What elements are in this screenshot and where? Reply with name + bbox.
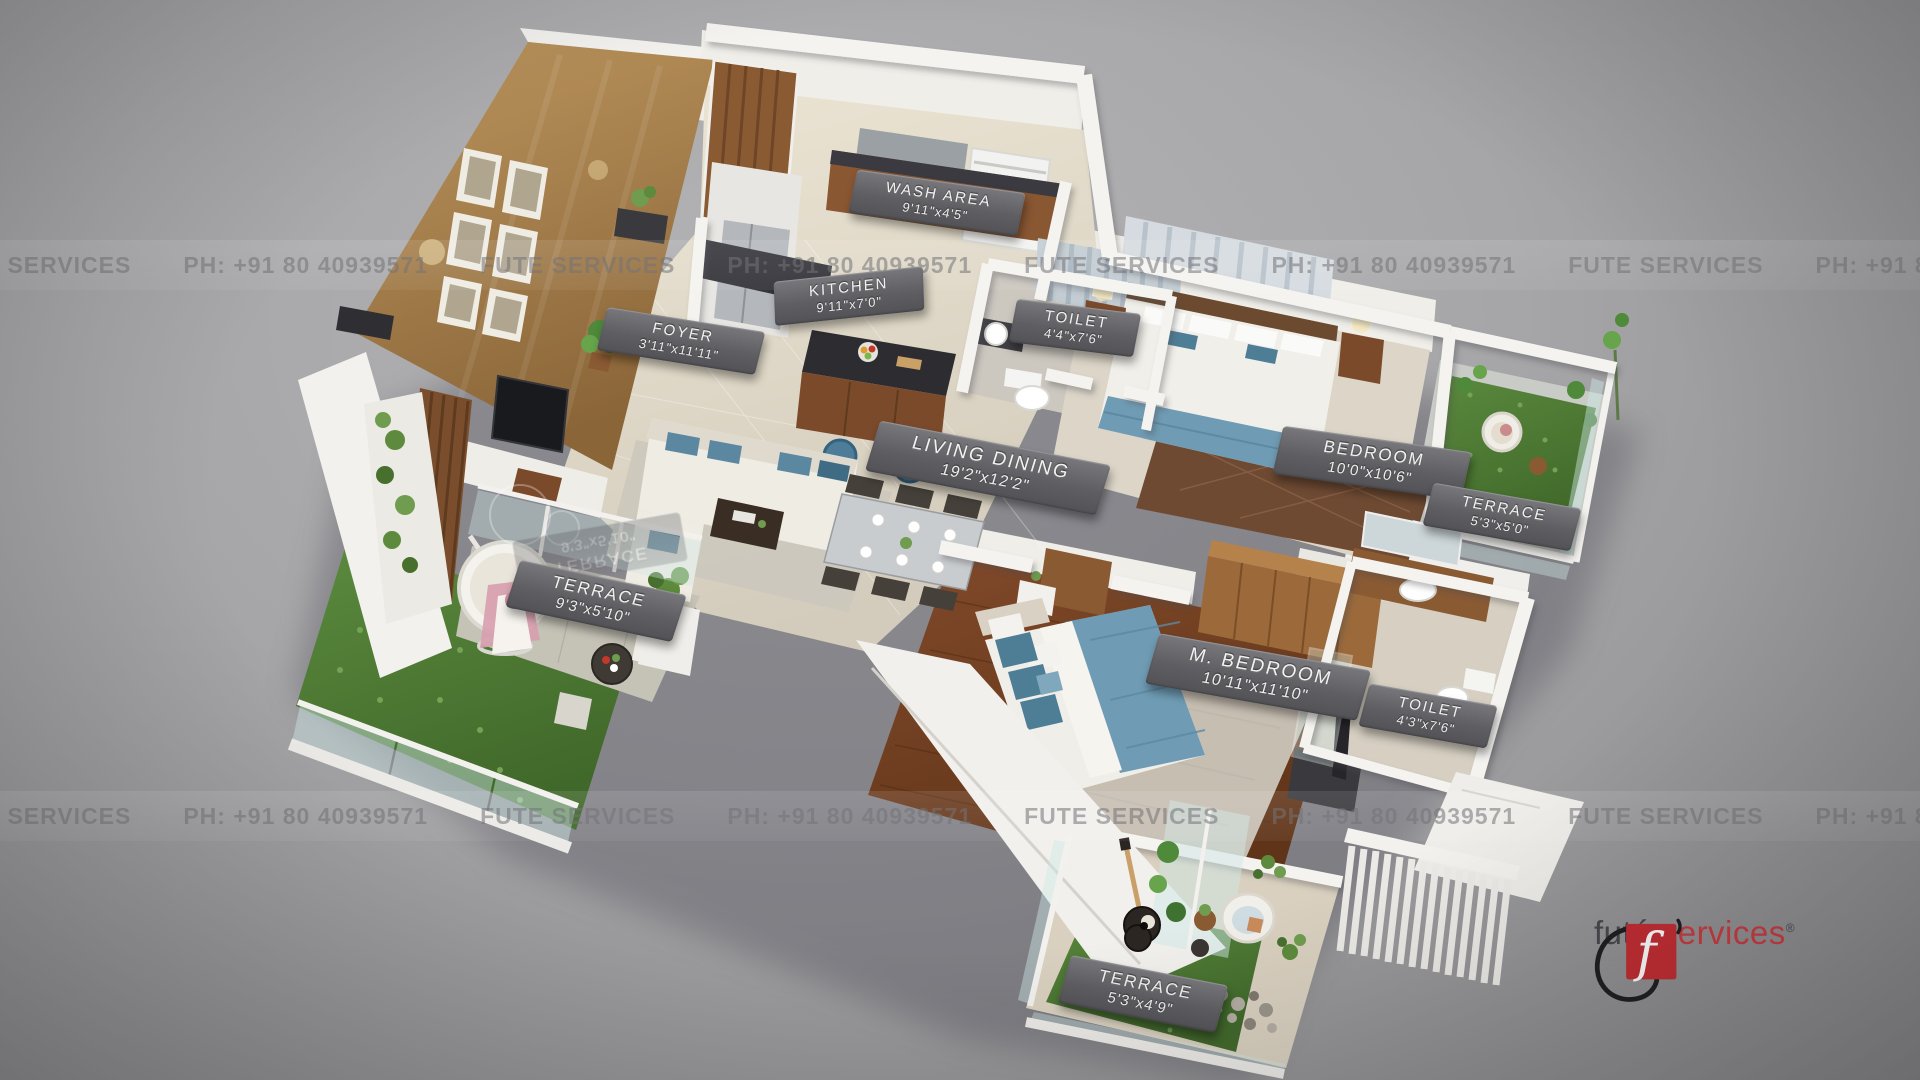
fute-services-logo: f futé services® Futuristic Unique Trend…	[1588, 916, 1795, 970]
side-table	[1529, 457, 1547, 475]
watermark-text: FUTE SERVICES	[480, 252, 675, 279]
watermark-text: PH: +91 80 40939571	[1816, 252, 1920, 279]
toilet-bowl	[1015, 386, 1049, 410]
watermark-text: FUTE SERVICES	[480, 803, 675, 830]
watermark-text: FUTE SERVICES	[1568, 803, 1763, 830]
watermark-text: PH: +91 80 40939571	[183, 252, 428, 279]
nightstand	[1338, 332, 1384, 384]
fute-logo-mark: f	[1588, 916, 1692, 1008]
tv-screen	[492, 376, 568, 452]
watermark-text: PH: +91 80 40939571	[1271, 803, 1516, 830]
watermark-text: FUTE SERVICES	[1024, 252, 1219, 279]
wash-basin	[985, 323, 1007, 345]
watermark-band: FUTE SERVICESPH: +91 80 40939571FUTE SER…	[0, 791, 1920, 841]
floor-plan-render: FUTE SERVICESPH: +91 80 40939571FUTE SER…	[0, 0, 1920, 1080]
wall-light	[588, 160, 608, 180]
watermark-text: PH: +91 80 40939571	[1816, 803, 1920, 830]
watermark-text: FUTE SERVICES	[0, 252, 131, 279]
watermark-text: FUTE SERVICES	[1024, 803, 1219, 830]
watermark-text: PH: +91 80 40939571	[1271, 252, 1516, 279]
stool	[1191, 939, 1209, 957]
logo-flick	[1678, 920, 1680, 932]
watermark-band: FUTE SERVICESPH: +91 80 40939571FUTE SER…	[0, 240, 1920, 290]
watermark-text: FUTE SERVICES	[1568, 252, 1763, 279]
watermark-text: FUTE SERVICES	[0, 803, 131, 830]
patio-table	[592, 644, 632, 684]
watermark-text: PH: +91 80 40939571	[727, 803, 972, 830]
watermark-text: PH: +91 80 40939571	[183, 803, 428, 830]
logo-registered-mark: ®	[1786, 921, 1795, 935]
outdoor-armchair	[1222, 894, 1274, 942]
